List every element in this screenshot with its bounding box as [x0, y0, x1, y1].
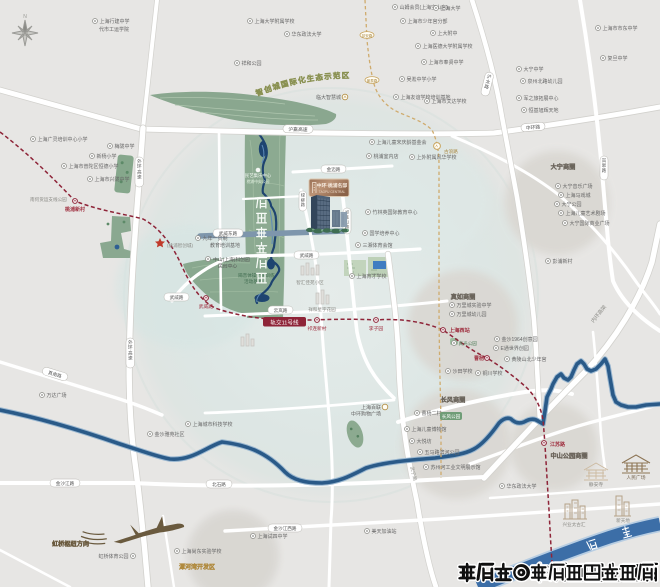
svg-text:祥和星宇花园: 祥和星宇花园 — [308, 306, 336, 313]
svg-text:上海西站: 上海西站 — [449, 326, 471, 334]
svg-text:万里城实验中学: 万里城实验中学 — [457, 302, 492, 309]
svg-text:三湘体育会馆: 三湘体育会馆 — [363, 242, 393, 249]
svg-text:美天加油站: 美天加油站 — [372, 528, 397, 535]
svg-text:恒基旭辉天地: 恒基旭辉天地 — [529, 107, 559, 114]
svg-text:教育培训基地: 教育培训基地 — [210, 242, 240, 249]
svg-text:江苏路: 江苏路 — [550, 441, 566, 448]
svg-text:桃浦新村: 桃浦新村 — [65, 206, 85, 213]
svg-text:苏州河工业文明展示馆: 苏州河工业文明展示馆 — [431, 464, 481, 471]
svg-text:桃浦室内店: 桃浦室内店 — [374, 153, 399, 160]
svg-text:上海市奉贤中学: 上海市奉贤中学 — [429, 59, 464, 66]
svg-text:云岚路: 云岚路 — [274, 307, 288, 314]
svg-text:上海行建中学: 上海行建中学 — [100, 18, 130, 25]
svg-text:金沙江路: 金沙江路 — [56, 480, 75, 487]
svg-text:新天地: 新天地 — [616, 517, 630, 524]
svg-text:沙田学校: 沙田学校 — [453, 368, 473, 375]
svg-text:路: 路 — [602, 167, 607, 174]
svg-text:万达广场: 万达广场 — [47, 392, 67, 399]
svg-text:上海儿童艺术剧场: 上海儿童艺术剧场 — [566, 210, 606, 217]
svg-text:N: N — [23, 14, 27, 20]
svg-text:上大附中: 上大附中 — [438, 30, 458, 37]
svg-text:上海百联: 上海百联 — [361, 404, 381, 411]
svg-text:桃浦中央公园: 桃浦中央公园 — [247, 179, 270, 184]
svg-text:曹杨二村: 曹杨二村 — [422, 410, 442, 417]
svg-text:大宁商圈: 大宁商圈 — [551, 163, 576, 171]
svg-text:上海育才学校: 上海育才学校 — [357, 273, 387, 280]
svg-text:军之旅拓展中心: 军之旅拓展中心 — [524, 95, 559, 102]
svg-text:长风公园: 长风公园 — [442, 413, 461, 420]
svg-text:E通世界创园: E通世界创园 — [501, 345, 529, 352]
svg-text:泉州北路幼儿园: 泉州北路幼儿园 — [528, 78, 563, 85]
svg-text:民创中心: 民创中心 — [218, 263, 237, 270]
svg-text:临大智慧城: 临大智慧城 — [316, 94, 341, 101]
svg-text:智汇佳苑小区: 智汇佳苑小区 — [296, 279, 324, 286]
svg-text:武威路: 武威路 — [170, 294, 184, 301]
svg-text:景泰路: 景泰路 — [367, 78, 378, 83]
svg-text:兴业太古汇: 兴业太古汇 — [563, 521, 586, 528]
svg-text:彭浦新村: 彭浦新村 — [553, 258, 573, 265]
svg-text:祥和公园: 祥和公园 — [242, 60, 262, 67]
svg-text:(桃浦智创城): (桃浦智创城) — [167, 242, 193, 249]
svg-text:国学培养中心: 国学培养中心 — [370, 230, 400, 237]
svg-text:上海市市东中学: 上海市市东中学 — [603, 25, 638, 32]
svg-text:万里城幼儿园: 万里城幼儿园 — [457, 311, 487, 318]
svg-text:金沙雅苑社区: 金沙雅苑社区 — [155, 431, 185, 438]
svg-text:上海儿童博物馆: 上海儿童博物馆 — [412, 426, 447, 433]
svg-text:长风商圈: 长风商圈 — [441, 396, 466, 404]
svg-text:大宁公园: 大宁公园 — [562, 201, 582, 208]
svg-text:静安寺: 静安寺 — [589, 481, 604, 488]
svg-text:上海市兴陇中学: 上海市兴陇中学 — [95, 176, 130, 183]
svg-text:竹林英国际教育中心: 竹林英国际教育中心 — [373, 209, 418, 216]
svg-text:中山(上海)科创园: 中山(上海)科创园 — [213, 256, 250, 263]
svg-text:铜川学校: 铜川学校 — [483, 370, 503, 377]
svg-text:虹桥体育公园: 虹桥体育公园 — [98, 553, 128, 560]
svg-text:新杨小学: 新杨小学 — [97, 153, 117, 160]
svg-text:虹桥枢纽方向: 虹桥枢纽方向 — [52, 540, 89, 548]
svg-text:九年一贯制: 九年一贯制 — [203, 235, 228, 242]
svg-text:大悦坊: 大悦坊 — [417, 438, 432, 445]
svg-text:吴淞中学小学: 吴淞中学小学 — [407, 76, 437, 83]
svg-text:上海试四中学: 上海试四中学 — [258, 533, 288, 540]
svg-text:金沙1964创意园: 金沙1964创意园 — [502, 336, 538, 343]
svg-text:金迈路: 金迈路 — [327, 166, 341, 173]
svg-text:复旦中学: 复旦中学 — [608, 55, 628, 62]
svg-text:华东政法大学: 华东政法大学 — [507, 483, 537, 490]
svg-text:五马路滨河公园: 五马路滨河公园 — [425, 449, 460, 456]
svg-text:潭河湾开发区: 潭河湾开发区 — [179, 563, 215, 571]
svg-text:武威路: 武威路 — [300, 252, 314, 259]
svg-text:活动基地: 活动基地 — [244, 278, 263, 285]
svg-text:梅陇中学: 梅陇中学 — [115, 143, 135, 150]
svg-text:上海市普陀区恒德小学: 上海市普陀区恒德小学 — [69, 163, 119, 170]
svg-text:中山公园商圈: 中山公园商圈 — [550, 452, 587, 460]
svg-text:上海大学附属学校: 上海大学附属学校 — [255, 18, 295, 25]
svg-text:大宁音乐广场: 大宁音乐广场 — [563, 183, 593, 190]
svg-text:TAOPU CENTRAL: TAOPU CENTRAL — [319, 190, 346, 194]
svg-text:南何货运支线公园: 南何货运支线公园 — [30, 196, 67, 203]
svg-text:中环·桃浦名邸: 中环·桃浦名邸 — [317, 182, 348, 189]
svg-text:上海儿童宋庆龄基金会: 上海儿童宋庆龄基金会 — [377, 139, 427, 146]
svg-text:上海市少年宫分部: 上海市少年宫分部 — [408, 18, 448, 25]
svg-text:民艺集乐中心: 民艺集乐中心 — [245, 172, 272, 179]
svg-text:人民广场: 人民广场 — [626, 474, 645, 481]
svg-text:真光公园: 真光公园 — [459, 340, 478, 347]
svg-text:真如商圈: 真如商圈 — [451, 293, 476, 301]
svg-text:华东政法大学: 华东政法大学 — [292, 31, 322, 38]
svg-text:李子园: 李子园 — [369, 325, 384, 332]
svg-text:上海市文达学校: 上海市文达学校 — [432, 98, 467, 105]
svg-text:上海医德大学附属学校: 上海医德大学附属学校 — [423, 43, 473, 50]
svg-text:中环购物广场: 中环购物广场 — [351, 411, 381, 418]
svg-text:上外附属风华学校: 上外附属风华学校 — [417, 154, 457, 161]
svg-text:祁连新村: 祁连新村 — [307, 325, 326, 332]
svg-text:上海城市科技学校: 上海城市科技学校 — [193, 421, 233, 428]
svg-text:武威路: 武威路 — [199, 303, 214, 310]
svg-text:大宁国际商业广场: 大宁国际商业广场 — [570, 220, 610, 227]
svg-text:上海马戏城: 上海马戏城 — [566, 192, 591, 199]
svg-text:上海尚东实验学校: 上海尚东实验学校 — [182, 548, 222, 555]
svg-text:祁安路: 祁安路 — [362, 33, 373, 38]
svg-text:上海大学: 上海大学 — [441, 5, 461, 12]
svg-text:曹杨: 曹杨 — [474, 355, 484, 362]
svg-text:金沙江西路: 金沙江西路 — [274, 525, 297, 532]
svg-text:轨交11号线: 轨交11号线 — [270, 319, 299, 327]
svg-text:上海广灵培训中心小学: 上海广灵培训中心小学 — [38, 136, 88, 143]
svg-text:北石路: 北石路 — [212, 481, 226, 488]
svg-text:黄陵山北少年宫: 黄陵山北少年宫 — [512, 356, 547, 363]
svg-text:大宁中学: 大宁中学 — [524, 66, 544, 73]
svg-text:代市工运学院: 代市工运学院 — [99, 26, 129, 33]
